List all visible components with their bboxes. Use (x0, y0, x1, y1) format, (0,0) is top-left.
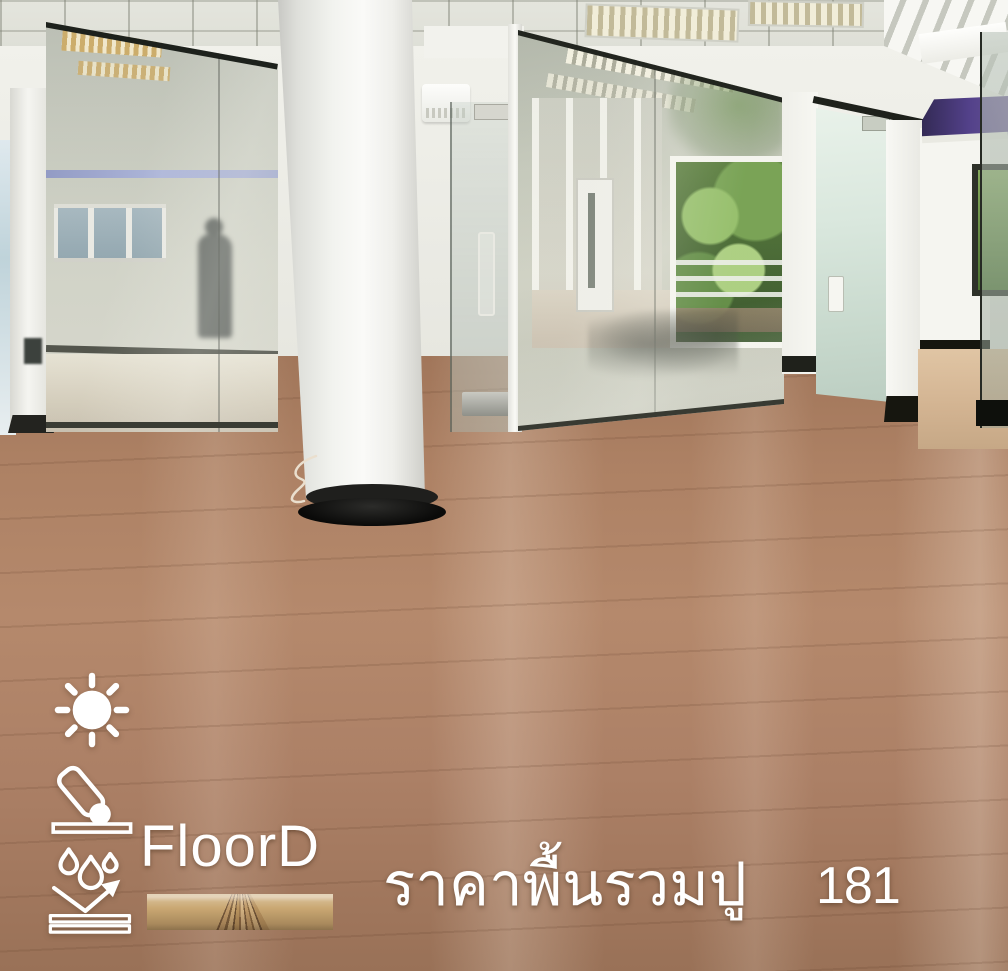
door-handle (478, 232, 495, 316)
left-wall-post (10, 88, 50, 428)
right-glass-baseboard (976, 400, 1008, 426)
impact-resistance-icon (44, 752, 138, 842)
sun-icon (46, 664, 138, 756)
cable-on-floor (284, 453, 324, 505)
flooring-promo-photo: FloorD ราคาพื้นรวมปู 181 (0, 0, 1008, 971)
center-glass-partition (518, 28, 784, 432)
door-top-hinge (474, 104, 510, 120)
ceiling-light (748, 0, 864, 28)
door-floor-plate (462, 392, 510, 416)
ceiling-light (584, 3, 739, 42)
dark-object-on-floor (24, 338, 42, 364)
left-glass-partition (46, 18, 278, 432)
frosted-glass-door (816, 106, 890, 402)
frosted-door-handle (828, 276, 844, 312)
price-value: 181 (816, 860, 900, 912)
mid-wall-panel (782, 92, 818, 374)
glass-bottom-edge (46, 422, 278, 428)
mid-wall-baseboard (782, 356, 818, 372)
brand-logo-text: FloorD (140, 818, 320, 876)
glass-reflection-sheen (46, 18, 278, 432)
price-caption-thai: ราคาพื้นรวมปู (383, 852, 747, 918)
water-resistance-icon (40, 842, 138, 934)
right-glass-partition (980, 32, 1008, 428)
wood-planks-logo-graphic (147, 894, 333, 930)
